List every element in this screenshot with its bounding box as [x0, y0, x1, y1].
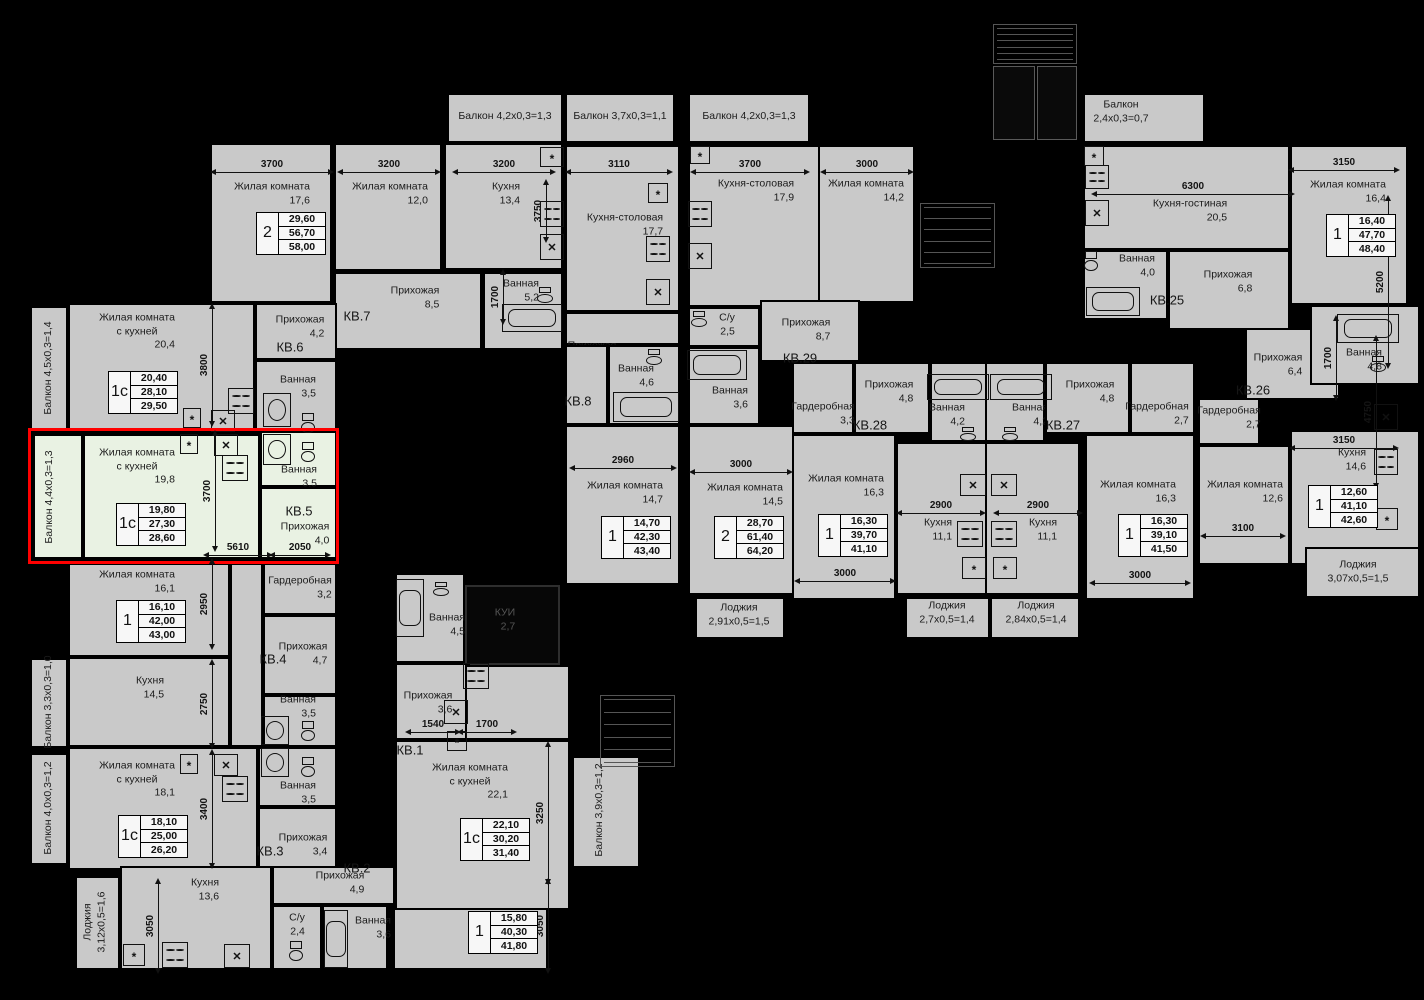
elevator-shaft — [1037, 66, 1077, 140]
room-kv6-hall[interactable] — [255, 303, 337, 360]
room-kv8-living[interactable] — [565, 425, 680, 585]
area-table: 228,7061,4064,20 — [714, 516, 784, 559]
floor-plan: Балкон 4,2х0,3=1,3Жилая комната17,6Жилая… — [0, 0, 1424, 1000]
room-kv4-kitchen[interactable] — [68, 657, 230, 747]
area-table: 112,6041,1042,60 — [1308, 485, 1378, 528]
room-kv7-bath[interactable] — [483, 272, 563, 350]
room-kv4-balcony[interactable] — [30, 658, 68, 748]
room-kv1-bath[interactable] — [395, 573, 465, 663]
room-kv25-balcony[interactable] — [1083, 93, 1205, 143]
stairs-icon — [920, 203, 995, 268]
room-kv28-hall[interactable] — [854, 362, 930, 434]
room-kv29-living2[interactable] — [818, 145, 915, 303]
room-kv4-hall[interactable] — [263, 615, 337, 695]
room-kv25-hall[interactable] — [1168, 250, 1290, 330]
room-kv29-loggia[interactable] — [695, 597, 785, 639]
room-kv2-loggia[interactable] — [75, 876, 120, 970]
room-kv26-loggia[interactable] — [1305, 547, 1420, 598]
room-kv25-bath[interactable] — [1083, 250, 1168, 320]
room-kv27-hall[interactable] — [1045, 362, 1130, 434]
room-kv28-ward[interactable] — [792, 362, 854, 434]
room-kv2-wc[interactable] — [272, 905, 322, 970]
area-table: 1с19,8027,3028,60 — [116, 503, 186, 546]
room-kv4-conn[interactable] — [230, 563, 263, 747]
room-kv3-hall[interactable] — [258, 807, 337, 870]
room-kv26-ward[interactable] — [1198, 398, 1260, 445]
sink-icon: ✕ — [1374, 404, 1398, 430]
room-kv8-hall2[interactable] — [565, 345, 608, 425]
room-kv7-balcony[interactable] — [447, 93, 563, 143]
room-kv3-bath[interactable] — [258, 747, 337, 807]
room-kv1-hall[interactable] — [395, 663, 470, 740]
room-kv29-balcony[interactable] — [688, 93, 810, 143]
room-kv6-balcony[interactable] — [30, 306, 68, 430]
room-kv27-bath[interactable] — [985, 362, 1045, 442]
room-kv4-bath[interactable] — [263, 695, 337, 747]
elevator-shaft — [993, 66, 1035, 140]
room-kv2-kitchen[interactable] — [120, 866, 272, 970]
room-kv29-bath[interactable] — [688, 347, 760, 425]
area-table: 116,4047,7048,40 — [1326, 214, 1396, 257]
room-kv8-bath[interactable] — [608, 345, 680, 425]
room-kv7-living2[interactable] — [334, 143, 442, 271]
stairs-icon — [993, 24, 1077, 64]
room-kv28-bath[interactable] — [930, 362, 990, 442]
room-kv8-balcony[interactable] — [565, 93, 675, 143]
area-table: 115,8040,3041,80 — [468, 911, 538, 954]
room-kv26-bath[interactable] — [1310, 305, 1420, 385]
room-kv2-hall[interactable] — [272, 866, 402, 905]
room-kv27-kitchen[interactable] — [985, 442, 1080, 595]
room-kv1-balcony[interactable] — [572, 756, 640, 868]
room-kv8-kitchen[interactable] — [565, 145, 680, 312]
room-kv29-living1[interactable] — [688, 425, 800, 595]
area-table: 229,6056,7058,00 — [256, 212, 326, 255]
area-table: 1с22,1030,2031,40 — [460, 818, 530, 861]
room-kv29-hall[interactable] — [760, 300, 860, 362]
room-kv28-kitchen[interactable] — [896, 442, 990, 595]
room-kv7-hall[interactable] — [334, 272, 482, 350]
room-kv29-kitchen[interactable] — [688, 145, 820, 307]
room-kv2-bath[interactable] — [322, 905, 388, 970]
room-kv6-bath[interactable] — [255, 360, 337, 432]
area-table: 1с20,4028,1029,50 — [108, 371, 178, 414]
room-kv25-kitchen[interactable] — [1083, 145, 1290, 250]
stairs-icon — [600, 695, 675, 767]
area-table: 116,1042,0043,00 — [116, 600, 186, 643]
room-kv27-loggia[interactable] — [990, 597, 1080, 639]
room-kv7-kitchen[interactable] — [444, 143, 563, 270]
room-kv4-ward[interactable] — [263, 563, 337, 615]
room-kv3-balcony[interactable] — [30, 753, 68, 865]
room-kv26-living[interactable] — [1198, 445, 1290, 565]
area-table: 114,7042,3043,40 — [601, 516, 671, 559]
area-table: 116,3039,1041,50 — [1118, 514, 1188, 557]
area-table: 116,3039,7041,10 — [818, 514, 888, 557]
room-kv1-nook[interactable] — [465, 665, 570, 740]
room-kv28-loggia[interactable] — [905, 597, 990, 639]
room-kv29-wc[interactable] — [688, 307, 760, 347]
room-kv27-ward[interactable] — [1130, 362, 1195, 434]
room-kv8-hall[interactable] — [565, 312, 680, 345]
room-kui — [465, 585, 560, 665]
area-table: 1с18,1025,0026,20 — [118, 815, 188, 858]
